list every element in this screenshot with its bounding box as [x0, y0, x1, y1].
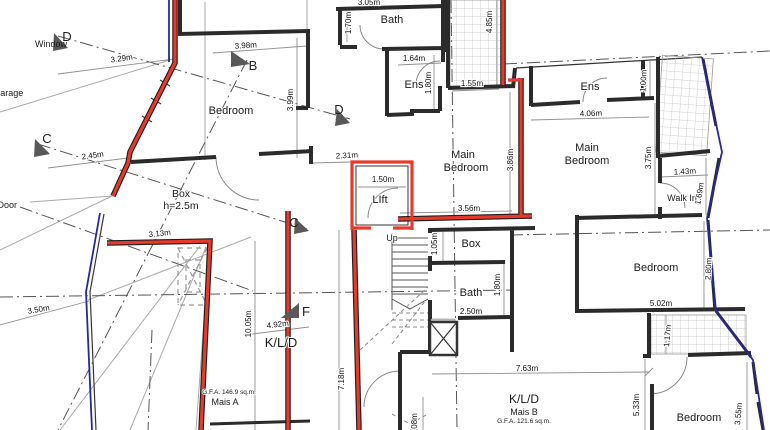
room-label: Up	[386, 233, 398, 243]
door-arc-bath-top	[360, 25, 384, 49]
service-shafts	[450, 0, 746, 354]
floor-plan-canvas: BedroomBoxh=2.5mBathEnsMainBedroomMainBe…	[0, 0, 770, 430]
dimension-label: 1.43m	[674, 166, 697, 176]
annotation-label: ge Door	[0, 200, 17, 210]
room-label: Ens	[581, 81, 600, 93]
dimension-label: 2.31m	[336, 150, 359, 160]
dimension-label: 3.05m	[358, 0, 381, 7]
section-marker-letter: F	[302, 304, 310, 319]
room-label: Bedroom	[565, 155, 610, 167]
dimension-label: 2.80m	[703, 257, 713, 280]
room-label: Main	[451, 149, 475, 161]
red-wall-boundary-left	[113, 0, 175, 196]
door-arc-box-a	[216, 157, 259, 200]
section-marker-letter: B	[249, 58, 258, 73]
labels-layer: BedroomBoxh=2.5mBathEnsMainBedroomMainBe…	[0, 0, 744, 429]
floor-plan: BedroomBoxh=2.5mBathEnsMainBedroomMainBe…	[0, 0, 770, 430]
dimension-label: 3.98m	[234, 40, 257, 51]
dimension-label: 1.05m	[430, 233, 439, 256]
section-marker-letter: C	[42, 131, 51, 146]
section-marker-triangle-b	[231, 51, 250, 67]
dimension-label: 3.29m	[110, 52, 134, 64]
room-label: h=2.5m	[163, 200, 199, 212]
dimension-label: 2.50m	[460, 307, 483, 316]
dimension-label: 1.80m	[424, 72, 433, 95]
dimension-label: 08m	[410, 413, 419, 429]
area-label: Mais B	[510, 407, 538, 417]
dimension-label: 3.56m	[458, 204, 481, 213]
section-marker-letter: C	[289, 215, 298, 230]
room-label: Ens	[405, 79, 424, 91]
area-label: G.F.A. 121.6 sq.m.	[497, 418, 551, 425]
dimension-label: 4.85m	[485, 11, 494, 34]
annotation-label: se: Garage	[0, 88, 23, 98]
dimension-label: 1.00m	[638, 69, 648, 92]
door-arc-corridor	[364, 371, 400, 407]
room-label: LIft	[372, 194, 387, 206]
red-wall-mais-a	[107, 241, 210, 430]
dimension-label: 7.63m	[516, 364, 539, 373]
dimension-label: 5.02m	[650, 299, 673, 308]
room-label: K/L/D	[509, 392, 539, 406]
dimension-label: 10.05m	[244, 310, 253, 337]
dimension-label: 7.18m	[337, 368, 346, 391]
room-label: Bedroom	[209, 105, 254, 117]
room-label: Box	[172, 188, 191, 200]
room-label: Bedroom	[444, 162, 489, 174]
section-marker-letter: D	[62, 29, 71, 44]
dimension-label: 3.55m	[733, 402, 744, 425]
dimension-label: 3.86m	[506, 149, 515, 172]
dimension-label: 3.99m	[286, 89, 295, 112]
dimension-label: 5.33m	[632, 394, 641, 417]
dimension-label: 1.80m	[493, 274, 502, 297]
dimension-label: 1.64m	[403, 54, 426, 63]
dimension-label: 4.06m	[580, 109, 603, 119]
room-label: Bath	[460, 287, 483, 299]
dimension-label: 3.13m	[148, 228, 171, 239]
room-label: Bath	[381, 14, 404, 26]
dimension-label: 3.75m	[644, 147, 653, 170]
room-label: Walk In	[667, 193, 697, 203]
room-label: Bedroom	[677, 412, 722, 424]
room-label: Bedroom	[634, 262, 679, 274]
staircase	[360, 233, 428, 424]
area-label: Mais A	[211, 397, 238, 407]
dimension-label: 2.45m	[81, 149, 105, 161]
area-label: G.F.A. 146.9 sq.m.	[202, 389, 256, 396]
dimension-label: 3.50m	[27, 303, 51, 316]
room-label: Box	[462, 238, 481, 250]
dimension-label: 1.70m	[344, 12, 353, 35]
dimension-label: 1.55m	[461, 79, 484, 88]
room-label: Main	[575, 142, 599, 154]
dimension-label: 1.69m	[693, 182, 706, 206]
dimension-label: 1.50m	[372, 175, 395, 184]
room-label: K/L/D	[265, 335, 298, 350]
section-marker-letter: D	[334, 102, 343, 117]
door-arc-bedroom-br	[650, 357, 687, 394]
